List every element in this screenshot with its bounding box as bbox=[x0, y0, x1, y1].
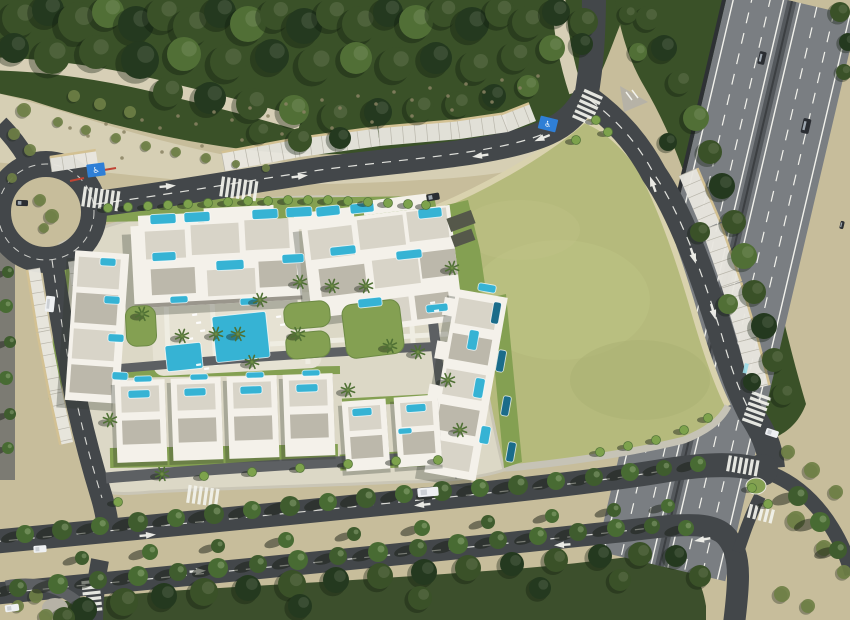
roof bbox=[69, 364, 113, 395]
roof bbox=[122, 419, 161, 444]
roof bbox=[402, 431, 435, 455]
roof bbox=[207, 268, 256, 296]
roof bbox=[190, 223, 240, 255]
roof bbox=[177, 383, 216, 410]
roof bbox=[244, 218, 290, 250]
roof bbox=[372, 255, 421, 288]
aerial-map: ♿♿ bbox=[0, 0, 850, 620]
roof bbox=[289, 379, 328, 406]
roof bbox=[419, 249, 458, 279]
roof bbox=[121, 385, 160, 412]
roof bbox=[178, 417, 217, 442]
roof bbox=[234, 415, 273, 440]
roof bbox=[72, 328, 116, 361]
roof bbox=[290, 413, 329, 438]
svg-text:♿: ♿ bbox=[92, 165, 100, 175]
roof bbox=[233, 381, 272, 408]
roof bbox=[350, 435, 383, 459]
roof bbox=[151, 267, 196, 295]
field-texture bbox=[570, 340, 710, 420]
building-cluster-top-left bbox=[121, 204, 303, 317]
roof bbox=[357, 215, 406, 250]
aerial-map-canvas: ♿♿ bbox=[0, 0, 850, 620]
